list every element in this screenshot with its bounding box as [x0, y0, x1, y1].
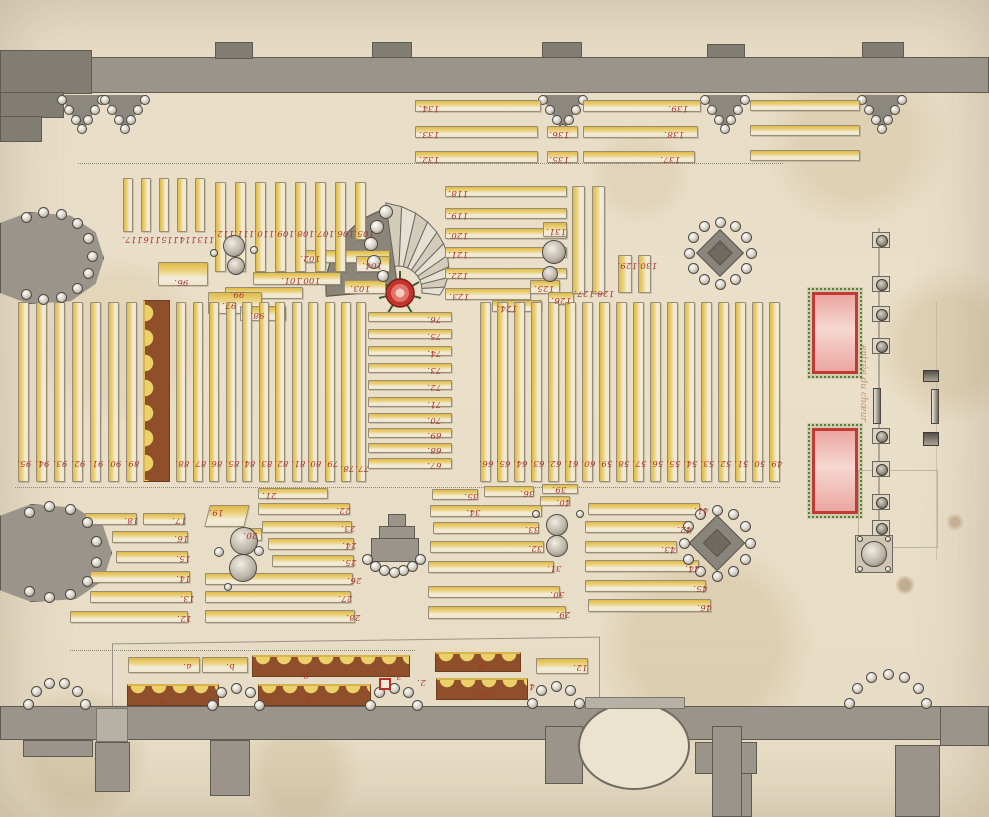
screen-column-shaft — [876, 341, 888, 353]
bench-number: 113. — [194, 234, 214, 244]
bench — [356, 302, 366, 482]
bench-number: 61. — [564, 458, 578, 468]
colonnette-bead — [100, 95, 110, 105]
wall-block — [215, 42, 253, 59]
wall-block — [545, 726, 583, 784]
bench-number: 55. — [666, 458, 680, 468]
bench-number: 30. — [550, 589, 564, 599]
colonnette-bead — [899, 672, 910, 683]
bench — [588, 599, 711, 612]
screen-line — [936, 302, 937, 560]
colonnette-bead — [59, 678, 70, 689]
bench — [497, 302, 508, 482]
bench-number: 100. — [300, 275, 320, 285]
bench-number: 24. — [342, 540, 356, 550]
bench-number: a. — [183, 661, 191, 671]
bench-number: 8. — [475, 661, 484, 671]
bench-number: 66. — [479, 458, 493, 468]
bench-number: 57. — [632, 458, 646, 468]
colonnette-bead — [890, 105, 900, 115]
bench — [262, 521, 352, 533]
screen-column-shaft — [876, 497, 888, 509]
red-square-marker — [379, 678, 391, 690]
bench-number: 21. — [262, 490, 276, 500]
bench-number: 2. — [417, 677, 426, 687]
column-base — [227, 257, 245, 275]
colonnette-bead — [576, 510, 584, 518]
bench-number: 64. — [513, 458, 527, 468]
bench-number: 111. — [234, 228, 254, 238]
screen-column-base — [872, 494, 890, 510]
colonnette-bead — [72, 218, 83, 229]
bench-number: 91. — [89, 458, 103, 468]
bench — [428, 606, 566, 619]
colonnette-bead — [133, 105, 143, 115]
colonnette-bead — [254, 546, 264, 556]
bench — [514, 302, 525, 482]
wall-block — [940, 706, 989, 746]
colonnette-bead — [844, 698, 855, 709]
colonnette-bead — [83, 233, 94, 244]
bench-number: 99. — [230, 289, 244, 299]
apse-outline — [578, 702, 690, 790]
bench-number: 53. — [700, 458, 714, 468]
bench — [531, 302, 542, 482]
bench-number: 67. — [427, 460, 441, 470]
bench — [54, 302, 65, 482]
colonnette-bead — [730, 221, 741, 232]
colonnette-bead — [857, 536, 863, 542]
colonnette-bead — [56, 292, 67, 303]
colonnette-bead — [65, 589, 76, 600]
bench-number: 51. — [734, 458, 748, 468]
screen-column-base — [872, 428, 890, 444]
bench-number: 132. — [419, 154, 439, 164]
bench-number: 3. — [393, 671, 402, 681]
bench — [599, 302, 610, 482]
bench — [735, 302, 746, 482]
colonnette-bead — [728, 509, 739, 520]
colonnette-bead — [21, 289, 32, 300]
colonnette-bead — [83, 115, 93, 125]
bench-number: 103. — [350, 283, 370, 293]
bench-number: 25. — [342, 557, 356, 567]
colonnette-bead — [740, 95, 750, 105]
bench-number: 34. — [466, 507, 480, 517]
bench-number: 134. — [419, 103, 439, 113]
bench-number: 50. — [751, 458, 765, 468]
wall-block — [0, 116, 42, 142]
bench — [752, 302, 763, 482]
bench-number: 23. — [341, 523, 355, 533]
screen-column-shaft — [876, 309, 888, 321]
bench — [701, 302, 712, 482]
bench — [275, 302, 285, 482]
bench-number: 104. — [362, 260, 382, 270]
bench-number: 124. — [497, 303, 517, 313]
colonnette-bead — [564, 115, 574, 125]
bench-number: 81. — [291, 458, 305, 468]
wall-block — [0, 92, 64, 118]
bench-number: 28. — [346, 612, 360, 622]
bench-number: 95. — [17, 458, 31, 468]
bench — [430, 541, 544, 553]
bench — [750, 100, 860, 111]
bench-number: 87. — [192, 458, 206, 468]
bench-number: 112. — [214, 228, 234, 238]
bench-number: 90. — [107, 458, 121, 468]
bench — [572, 186, 585, 294]
bench — [242, 302, 252, 482]
colonnette-bead — [897, 95, 907, 105]
bench-number: 13. — [180, 593, 194, 603]
bench-number: 118. — [448, 188, 468, 198]
wall-block — [23, 740, 93, 757]
bench — [433, 522, 539, 534]
bench-number: 42. — [677, 524, 691, 534]
bench — [650, 302, 661, 482]
wall-block — [371, 538, 419, 562]
screen-column-shaft — [876, 464, 888, 476]
column-base — [546, 514, 568, 536]
wall-block — [96, 708, 128, 742]
bench-number: 101. — [281, 275, 301, 285]
bench-number: 5. — [303, 694, 312, 704]
bench-number: 84. — [241, 458, 255, 468]
scalloped-bench — [258, 684, 371, 706]
plan-canvas: porte appellée au chœur entrée du chœur … — [0, 0, 989, 817]
bench-number: 109. — [274, 228, 294, 238]
colonnette-bead — [726, 115, 736, 125]
bench — [325, 302, 335, 482]
bench-number: 59. — [598, 458, 612, 468]
screen-column-shaft — [876, 279, 888, 291]
screen-column-base — [872, 276, 890, 292]
bench-number: 32. — [528, 543, 542, 553]
colonnette-bead — [72, 686, 83, 697]
stair-step — [422, 287, 445, 295]
bench-number: 85. — [225, 458, 239, 468]
colonnette-bead — [254, 700, 265, 711]
colonnette-bead — [398, 565, 409, 576]
guide-dotted-line — [70, 650, 415, 651]
wall-block — [95, 742, 130, 792]
bench — [428, 586, 560, 598]
bench-number: 54. — [683, 458, 697, 468]
colonnette-bead — [210, 249, 218, 257]
colonnette-bead — [551, 681, 562, 692]
bench-number: 128. — [594, 288, 614, 298]
bench-number: 73. — [427, 365, 441, 375]
bench — [292, 302, 302, 482]
column-base — [542, 266, 558, 282]
bench-number: 68. — [427, 445, 441, 455]
bench-number: 88. — [175, 458, 189, 468]
screen-column-base — [872, 338, 890, 354]
bench-number: 12. — [573, 662, 587, 672]
bench-number: 79. — [324, 458, 338, 468]
bench — [226, 302, 236, 482]
colonnette-bead — [720, 124, 730, 134]
bench-number: 138. — [664, 129, 684, 139]
bench-number: 65. — [496, 458, 510, 468]
bench-number: 39. — [552, 484, 566, 494]
colonnette-bead — [31, 686, 42, 697]
colonnette-bead — [745, 538, 756, 549]
bench-number: 58. — [615, 458, 629, 468]
colonnette-bead — [864, 105, 874, 115]
bench — [684, 302, 695, 482]
colonnette-bead — [741, 232, 752, 243]
bench-number: 76. — [427, 314, 441, 324]
bench-number: 41. — [694, 505, 708, 515]
bench-number: 27. — [338, 593, 352, 603]
bench-number: 131. — [546, 226, 566, 236]
bench-number: 86. — [208, 458, 222, 468]
scalloped-bench — [252, 655, 410, 677]
bench — [123, 178, 133, 232]
colonnette-bead — [38, 207, 49, 218]
bench-number: 63. — [530, 458, 544, 468]
bench-number: b. — [226, 661, 235, 671]
colonnette-bead — [379, 205, 393, 219]
bench-number: 139. — [668, 103, 688, 113]
bench — [548, 302, 559, 482]
bench — [205, 591, 351, 603]
screen-column-base — [872, 232, 890, 248]
bench-number: 70. — [427, 415, 441, 425]
bench — [90, 302, 101, 482]
bench-number: 92. — [71, 458, 85, 468]
bench — [18, 302, 29, 482]
bench-number: 135. — [549, 154, 569, 164]
colonnette-bead — [140, 95, 150, 105]
bench — [36, 302, 47, 482]
wall-block — [372, 42, 412, 58]
colonnette-bead — [746, 248, 757, 259]
colonnette-bead — [728, 566, 739, 577]
colonnette-bead — [571, 105, 581, 115]
column-base — [542, 240, 566, 264]
screen-column-shaft — [876, 235, 888, 247]
colonnette-bead — [87, 251, 98, 262]
bench-number: 9. — [300, 670, 309, 680]
colonnette-bead — [64, 105, 74, 115]
bench-number: 18. — [124, 515, 138, 525]
column-base — [223, 235, 245, 257]
bench — [585, 521, 691, 533]
colonnette-bead — [715, 279, 726, 290]
colonnette-bead — [885, 536, 891, 542]
colonnette-bead — [712, 571, 723, 582]
bench-number: 110. — [254, 228, 274, 238]
bench-number: 93. — [53, 458, 67, 468]
bench-number: 137. — [660, 154, 680, 164]
guide-dotted-line — [15, 487, 780, 488]
colonnette-bead — [688, 263, 699, 274]
bench-number: 49. — [768, 458, 782, 468]
bench-number: 133. — [419, 129, 439, 139]
bench — [769, 302, 780, 482]
bench-number: 45. — [693, 583, 707, 593]
wall-block — [0, 706, 989, 740]
colonnette-bead — [885, 566, 891, 572]
bench-number: 6. — [156, 696, 165, 706]
bench-number: 12. — [177, 613, 191, 623]
colonnette-bead — [57, 95, 67, 105]
wall-block — [0, 57, 989, 93]
bench-number: 43. — [661, 544, 675, 554]
bench-number: 121. — [448, 249, 468, 259]
screen-column-shaft — [876, 523, 888, 535]
wall-block — [862, 42, 904, 58]
bench — [141, 178, 151, 232]
colonnette-bead — [740, 521, 751, 532]
wall-block — [542, 42, 582, 58]
bench — [585, 560, 699, 572]
column-base — [229, 554, 257, 582]
colonnette-bead — [679, 538, 690, 549]
colonnette-bead — [574, 698, 585, 709]
bench-number: 96. — [174, 277, 188, 287]
bench-number: 107. — [314, 228, 334, 238]
colonnette-bead — [44, 501, 55, 512]
bench — [70, 611, 188, 623]
bench — [428, 561, 554, 573]
bench-number: 123. — [449, 291, 469, 301]
screen-step-block — [923, 432, 939, 446]
bench — [588, 503, 700, 515]
bench-number: 52. — [717, 458, 731, 468]
colonnette-bead — [107, 105, 117, 115]
bench-number: 46. — [697, 602, 711, 612]
colonnette-bead — [80, 699, 91, 710]
wall-block — [707, 44, 745, 58]
column-base — [546, 535, 568, 557]
bench — [195, 178, 205, 232]
bench — [90, 591, 192, 603]
bench — [209, 302, 219, 482]
bench-number: 31. — [547, 563, 561, 573]
bench-number: 72. — [427, 382, 441, 392]
bench-number: 4. — [526, 681, 535, 691]
bench — [341, 302, 351, 482]
bench — [215, 182, 226, 272]
bench-number: 127. — [574, 288, 594, 298]
colonnette-bead — [214, 547, 224, 557]
bench-number: 22. — [336, 505, 350, 515]
colonnette-bead — [21, 212, 32, 223]
bench-number: 102. — [300, 253, 320, 263]
colonnette-bead — [545, 105, 555, 115]
bench-number: 106. — [334, 228, 354, 238]
bench — [718, 302, 729, 482]
screen-column-base — [872, 461, 890, 477]
bench — [72, 302, 83, 482]
colonnette-bead — [740, 554, 751, 565]
colonnette-bead — [224, 583, 232, 591]
bench-number: 89. — [125, 458, 139, 468]
bench-number: 83. — [258, 458, 272, 468]
colonnette-bead — [412, 700, 423, 711]
colonnette-bead — [712, 505, 723, 516]
bench-number: 60. — [581, 458, 595, 468]
colonnette-bead — [715, 217, 726, 228]
bench-number: 36. — [520, 488, 534, 498]
bench-number: 108. — [294, 228, 314, 238]
bench — [202, 657, 248, 673]
bench-number: 122. — [448, 270, 468, 280]
colonnette-bead — [700, 95, 710, 105]
bench-number: 56. — [649, 458, 663, 468]
colonnette-bead — [44, 592, 55, 603]
screen-column-shaft — [876, 431, 888, 443]
colonnette-bead — [866, 672, 877, 683]
bench-number: 62. — [547, 458, 561, 468]
colonnette-bead — [913, 683, 924, 694]
bench-number: 33. — [525, 524, 539, 534]
screen-door-jamb — [873, 388, 881, 424]
wall-block — [210, 740, 250, 796]
bench-number: 74. — [427, 348, 441, 358]
bench-number: 126. — [551, 295, 571, 305]
bench — [585, 580, 706, 592]
wall-block — [895, 745, 940, 817]
bench — [193, 302, 203, 482]
bench — [177, 178, 187, 232]
bench — [255, 182, 266, 272]
wall-block — [0, 50, 92, 94]
colonnette-bead — [44, 678, 55, 689]
bench — [308, 302, 318, 482]
colonnette-bead — [730, 274, 741, 285]
bench-number: 44. — [685, 563, 699, 573]
colonnette-bead — [852, 683, 863, 694]
bench — [592, 186, 605, 294]
bench-number: 98. — [250, 310, 264, 320]
colonnette-bead — [532, 510, 540, 518]
bench-number: 130. — [637, 260, 657, 270]
colonnette-bead — [90, 105, 100, 115]
colonnette-bead — [707, 105, 717, 115]
bench-number: 75. — [427, 331, 441, 341]
colonnette-bead — [857, 566, 863, 572]
bench — [750, 150, 860, 161]
scalloped-bench — [143, 300, 170, 482]
screen-step-block — [923, 370, 939, 382]
colonnette-bead — [82, 576, 93, 587]
choir-screen-note: entrée du chœur — [858, 345, 868, 422]
bench-number: 129. — [617, 260, 637, 270]
colonnette-bead — [877, 124, 887, 134]
bench — [259, 302, 269, 482]
bench-number: 29. — [556, 609, 570, 619]
bench-number: 120. — [448, 230, 468, 240]
bench-number: 125. — [534, 283, 554, 293]
bench-number: 71. — [427, 399, 441, 409]
bench-number: 77. — [355, 463, 369, 473]
bench-number: 80. — [307, 458, 321, 468]
bench-number: 26. — [347, 575, 361, 585]
screen-door-jamb — [931, 389, 939, 424]
bench — [480, 302, 491, 482]
bench-number: 119. — [448, 210, 468, 220]
bench — [176, 302, 186, 482]
bench-number: 78. — [340, 463, 354, 473]
colonnette-bead — [688, 232, 699, 243]
colonnette-bead — [231, 683, 242, 694]
bench — [750, 125, 860, 136]
